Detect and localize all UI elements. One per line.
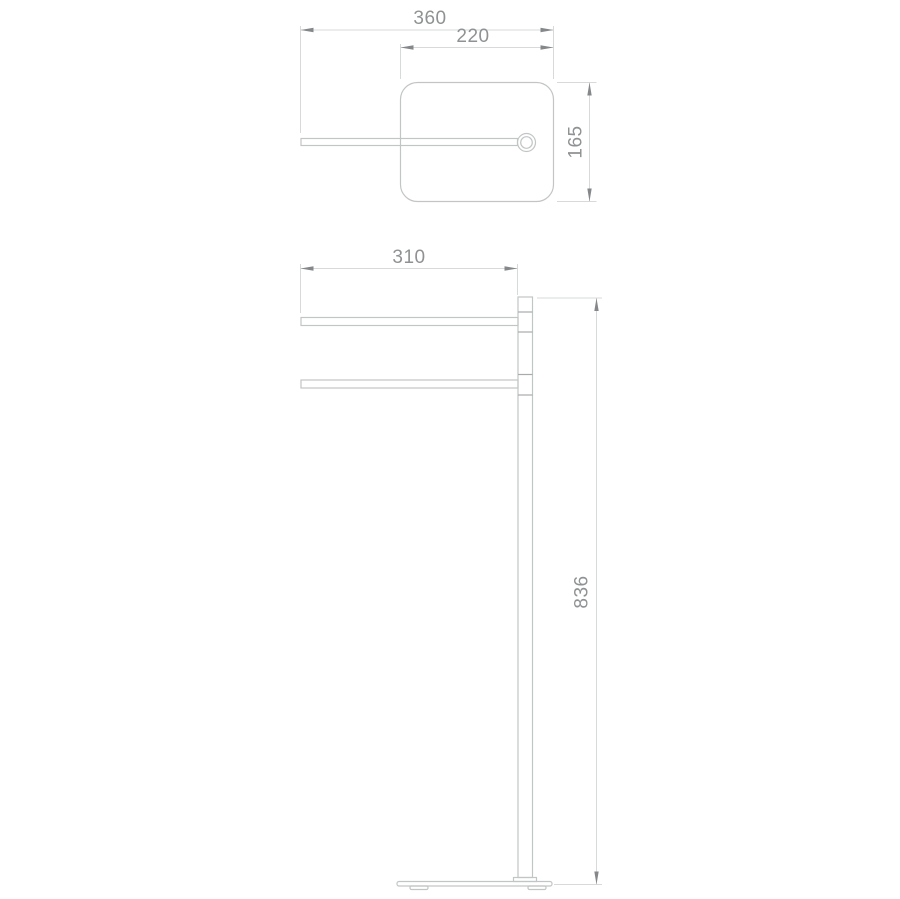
drawing-canvas: 360 220 165 — [0, 0, 900, 899]
arrow-right-icon — [541, 28, 554, 32]
arrow-down-icon — [594, 872, 598, 885]
technical-drawing: 360 220 165 — [0, 0, 900, 899]
base-plate — [397, 882, 552, 887]
dim-text-base-depth: 165 — [566, 125, 587, 158]
arm-pivot-inner-circle — [521, 137, 533, 149]
dim-text-base-width: 220 — [456, 26, 489, 47]
arrow-left-icon — [401, 45, 414, 49]
arrow-right-icon — [505, 266, 518, 270]
arrow-up-icon — [587, 83, 591, 96]
arrow-up-icon — [594, 298, 598, 311]
foot-left — [410, 886, 428, 890]
top-view: 360 220 165 — [301, 8, 597, 202]
arrow-left-icon — [301, 28, 314, 32]
dim-overall-height: 836 — [537, 298, 602, 885]
dim-rail-length: 310 — [301, 247, 518, 313]
arrow-right-icon — [541, 45, 554, 49]
dim-base-depth: 165 — [557, 83, 597, 202]
towel-arm-top-view — [301, 139, 518, 146]
base-plate-top-view — [401, 83, 554, 202]
arrow-down-icon — [587, 189, 591, 202]
dim-text-rail-length: 310 — [392, 247, 425, 268]
post — [518, 297, 533, 878]
dim-overall-reach: 360 — [301, 8, 554, 133]
dim-base-width: 220 — [401, 26, 554, 79]
upper-towel-rail — [301, 318, 518, 326]
dim-text-overall-reach: 360 — [413, 8, 446, 29]
lower-towel-rail — [301, 380, 518, 388]
dim-text-overall-height: 836 — [572, 575, 593, 608]
foot-right — [528, 886, 546, 890]
arrow-left-icon — [301, 266, 314, 270]
front-view: 310 836 — [301, 247, 603, 890]
